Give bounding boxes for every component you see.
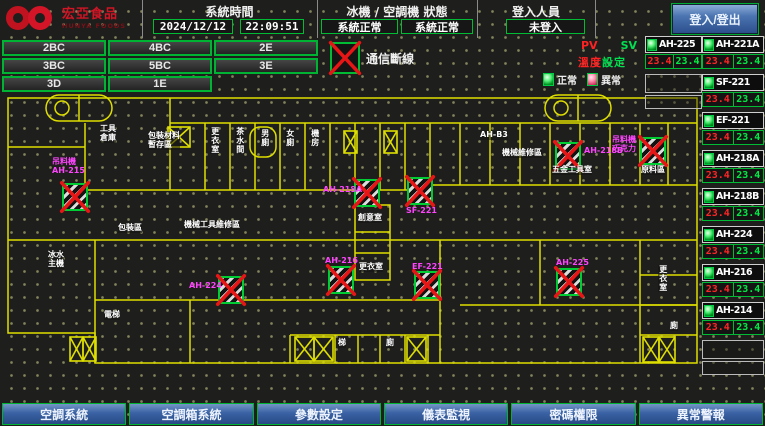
status-led-icon: [704, 305, 714, 317]
equipment-button[interactable]: AH-216: [702, 264, 764, 281]
equipment-column-right: AH-221A 23.4 23.4 SF-221 23.4 23.4: [702, 36, 764, 377]
menu-button[interactable]: 密碼權限: [511, 403, 635, 425]
pv-value: 23.4: [703, 207, 734, 220]
status-led-icon: [704, 267, 714, 279]
unit-label: 吊料機 巧克力: [612, 135, 636, 153]
normal-led-icon: [543, 73, 554, 86]
unit-label: SF-221: [406, 206, 437, 215]
equipment-name: EF-221: [716, 115, 749, 126]
pv-value: 23.4: [703, 93, 734, 106]
room-label: 機械維修區: [502, 149, 542, 158]
equipment-values: 23.4 23.4: [702, 92, 764, 107]
equipment-values: 23.4 23.4: [702, 206, 764, 221]
pv-value: 23.4: [703, 283, 734, 296]
equipment-entry: AH-221A 23.4 23.4: [702, 36, 764, 69]
company-logo: 宏亞食品 HUNYA FOODS: [6, 2, 142, 36]
equipment-entry: SF-221 23.4 23.4: [702, 74, 764, 107]
ahu-unit-icon[interactable]: [328, 266, 354, 294]
equipment-name: AH-218A: [716, 153, 759, 164]
comm-loss-legend: 通信斷線: [330, 42, 414, 74]
floor-button[interactable]: 3BC: [2, 58, 106, 74]
sv-value: 23.4: [734, 207, 764, 220]
system-time-title: 系統時間: [142, 3, 317, 20]
room-label: 男廁: [260, 129, 269, 147]
equipment-button[interactable]: AH-218A: [702, 150, 764, 167]
logo-subtitle: HUNYA FOODS: [62, 23, 126, 30]
menu-button[interactable]: 參數設定: [257, 403, 381, 425]
equipment-values: 23.4 23.4: [702, 320, 764, 335]
room-label: 更衣室: [658, 265, 667, 292]
chiller-status-display: 系統正常: [321, 19, 398, 34]
pv-value: 23.4: [703, 321, 734, 334]
room-label: 包裝區: [118, 224, 142, 233]
system-date-display: 2024/12/12: [153, 19, 233, 34]
status-led-icon: [704, 153, 714, 165]
floor-button[interactable]: 4BC: [108, 40, 212, 56]
logo-title: 宏亞食品: [62, 8, 126, 21]
pv-value: 23.4: [703, 55, 734, 68]
room-label: 更衣室: [210, 127, 219, 154]
equipment-button[interactable]: AH-218B: [702, 188, 764, 205]
status-led-icon: [704, 115, 714, 127]
equipment-values: 23.4 23.4: [702, 244, 764, 259]
sv-value: 23.4: [734, 131, 764, 144]
equipment-button[interactable]: AH-225: [645, 36, 702, 53]
pv-header: PV: [581, 39, 598, 52]
equipment-name: AH-216: [716, 267, 752, 278]
equipment-values: 23.4 23.4: [702, 282, 764, 297]
bottom-menu: 空調系統空調箱系統參數設定儀表監視密碼權限異常警報: [0, 402, 765, 426]
unit-label: EF-221: [412, 262, 443, 271]
status-legend: 正常 異常: [543, 72, 621, 87]
pv-value: 23.4: [646, 55, 674, 68]
sv-header: SV: [621, 39, 637, 52]
status-led-icon: [704, 229, 714, 241]
abnormal-label: 異常: [601, 72, 621, 87]
equipment-entry: AH-216 23.4 23.4: [702, 264, 764, 297]
equipment-entry: AH-224 23.4 23.4: [702, 226, 764, 259]
pv-value: 23.4: [703, 245, 734, 258]
equipment-button[interactable]: AH-214: [702, 302, 764, 319]
sv-value: 23.4: [674, 55, 701, 68]
room-label: 工具 倉庫: [100, 125, 116, 143]
room-label: 原料區: [641, 166, 665, 175]
floor-button[interactable]: 3E: [214, 58, 318, 74]
login-logout-button[interactable]: 登入/登出: [672, 4, 758, 34]
equipment-entry: EF-221 23.4 23.4: [702, 112, 764, 145]
status-led-icon: [704, 191, 714, 203]
ahu-status-display: 系統正常: [401, 19, 473, 34]
room-label: 女廁: [285, 129, 294, 147]
room-label: 梯: [338, 339, 346, 348]
empty-slot: [645, 74, 702, 93]
equipment-button[interactable]: AH-221A: [702, 36, 764, 53]
status-led-icon: [647, 39, 657, 51]
empty-slot: [702, 340, 764, 359]
floor-selector: 2BC4BC2E3BC5BC3E3D1E: [2, 40, 326, 94]
normal-label: 正常: [557, 72, 577, 87]
equipment-button[interactable]: AH-224: [702, 226, 764, 243]
menu-button[interactable]: 儀表監視: [384, 403, 508, 425]
temp-setting-header: 溫度設定: [578, 54, 626, 70]
menu-button[interactable]: 空調系統: [2, 403, 126, 425]
room-label: 茶水間: [235, 127, 244, 154]
unit-label: AH-224: [189, 281, 222, 290]
floor-button[interactable]: 5BC: [108, 58, 212, 74]
header-divider: [595, 0, 596, 38]
unit-label: AH-225: [556, 258, 589, 267]
pv-value: 23.4: [703, 169, 734, 182]
equipment-entry: AH-214 23.4 23.4: [702, 302, 764, 335]
status-led-icon: [704, 77, 714, 89]
equipment-values: 23.4 23.4: [702, 54, 764, 69]
temp-header-green: 設定: [602, 56, 626, 69]
sv-value: 23.4: [734, 169, 764, 182]
sv-value: 23.4: [734, 245, 764, 258]
floor-plan: 吊料機 AH-215AH-224AH-216AH-218ASF-221EF-22…: [0, 87, 702, 403]
temp-header-red: 溫度: [578, 56, 602, 69]
equipment-button[interactable]: SF-221: [702, 74, 764, 91]
comm-loss-x-icon: [330, 42, 360, 74]
abnormal-led-icon: [587, 73, 598, 86]
ahu-unit-icon[interactable]: [407, 177, 433, 205]
room-label: 機械工具維修區: [184, 221, 240, 230]
equipment-column-left: AH-225 23.4 23.4: [645, 36, 702, 111]
machine-status-title: 冰機 / 空調機 狀態: [317, 3, 477, 20]
room-label: 機房: [310, 129, 319, 147]
system-clock-display: 22:09:51: [240, 19, 304, 34]
equipment-name: AH-225: [659, 39, 695, 50]
ahu-unit-icon[interactable]: [556, 268, 582, 296]
room-label: 電梯: [104, 311, 120, 320]
ahu-unit-icon[interactable]: [62, 183, 88, 211]
equipment-name: SF-221: [716, 77, 750, 88]
floor-button[interactable]: 2BC: [2, 40, 106, 56]
login-user-title: 登入人員: [477, 3, 595, 20]
equipment-values: 23.4 23.4: [702, 168, 764, 183]
room-label: AH-B3: [480, 131, 508, 140]
ahu-unit-icon[interactable]: [640, 137, 666, 165]
sv-value: 23.4: [734, 55, 764, 68]
equipment-entry: AH-225 23.4 23.4: [645, 36, 702, 69]
value-column-headers: PV SV: [581, 39, 637, 52]
empty-slot: [645, 95, 702, 109]
room-label: 冰水 主機: [48, 251, 64, 269]
room-label: 包裝材料 暫存區: [148, 132, 180, 150]
sv-value: 23.4: [734, 283, 764, 296]
logo-rings-icon: [6, 4, 58, 34]
equipment-name: AH-218B: [716, 191, 759, 202]
status-led-icon: [704, 39, 714, 51]
hmi-screen: 宏亞食品 HUNYA FOODS 系統時間 2024/12/12 22:09:5…: [0, 0, 765, 426]
floor-button[interactable]: 2E: [214, 40, 318, 56]
equipment-button[interactable]: EF-221: [702, 112, 764, 129]
comm-loss-label: 通信斷線: [366, 50, 414, 74]
unit-label: 吊料機 AH-215: [52, 157, 85, 175]
room-label: 廁: [670, 322, 678, 331]
equipment-name: AH-221A: [716, 39, 759, 50]
equipment-values: 23.4 23.4: [702, 130, 764, 145]
equipment-values: 23.4 23.4: [645, 54, 702, 69]
ahu-unit-icon[interactable]: [414, 271, 440, 299]
menu-button[interactable]: 空調箱系統: [129, 403, 253, 425]
equipment-name: AH-224: [716, 229, 752, 240]
room-label: 創意室: [358, 214, 382, 223]
empty-slot: [702, 361, 764, 375]
menu-button[interactable]: 異常警報: [639, 403, 763, 425]
room-label: 五金工具室: [552, 166, 592, 175]
room-label: 更衣室: [359, 263, 383, 272]
equipment-entry: AH-218B 23.4 23.4: [702, 188, 764, 221]
login-user-display: 未登入: [506, 19, 585, 34]
sv-value: 23.4: [734, 93, 764, 106]
equipment-name: AH-214: [716, 305, 752, 316]
pv-value: 23.4: [703, 131, 734, 144]
sv-value: 23.4: [734, 321, 764, 334]
room-label: 廁: [386, 339, 394, 348]
equipment-entry: AH-218A 23.4 23.4: [702, 150, 764, 183]
unit-label: AH-216: [325, 256, 358, 265]
unit-label: AH-218A: [323, 185, 362, 194]
